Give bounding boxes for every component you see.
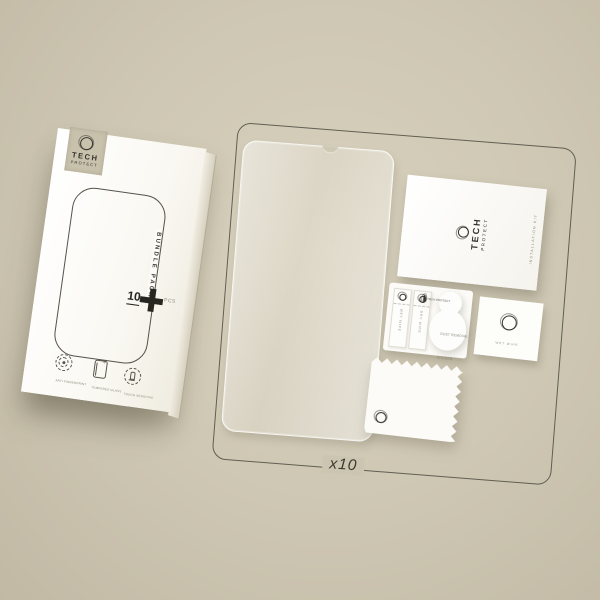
wet-wipe-label: WET WIPE xyxy=(474,330,540,355)
kit-contents-outline: TECH PROTECT INSTALLATION KIT WET WIPE D… xyxy=(211,122,576,486)
brand-logo: TECH PROTECT xyxy=(70,135,101,168)
quantity-unit: PCS xyxy=(164,297,177,305)
brand-logo: TECH PROTECT xyxy=(456,215,488,251)
sachet-label: DRY WIPE xyxy=(417,311,423,334)
retail-box: TECH PROTECT BUNDLE PACK 10 PCS ANTI FIN… xyxy=(21,128,207,412)
brand-ring-icon xyxy=(457,226,469,238)
brand-ring-icon xyxy=(80,136,95,151)
feature-touch-sensitive: TOUCH SENSITIVE xyxy=(108,364,155,405)
feature-label: TOUCH SENSITIVE xyxy=(123,393,153,400)
sticker-line1: DUST REMOVAL xyxy=(440,332,469,340)
box-side-edge xyxy=(168,152,217,419)
dust-removal-sticker: TECH PROTECT DUST REMOVAL STICKER xyxy=(427,290,470,353)
wet-wipe-packet: WET WIPE xyxy=(474,296,544,361)
brand-ring-icon xyxy=(399,293,407,301)
brand-ring-icon xyxy=(501,315,518,332)
wipes-backing-card: WET WIPE DRY WIPE TECH PROTECT DUST REMO… xyxy=(383,282,474,358)
pack-quantity-label: x10 xyxy=(322,455,365,476)
brand-badge: TECH PROTECT xyxy=(64,127,108,176)
brand-ring-icon xyxy=(375,411,387,423)
microfiber-cloth xyxy=(364,357,464,443)
touch-sensitive-icon xyxy=(123,366,142,385)
sachet-head xyxy=(394,289,411,306)
card-edge-text: INSTALLATION KIT xyxy=(529,214,538,265)
fingerprint-icon xyxy=(54,352,73,371)
tempered-glass-icon xyxy=(92,359,107,379)
product-photo-scene: TECH PROTECT BUNDLE PACK 10 PCS ANTI FIN… xyxy=(0,0,600,600)
instruction-card: TECH PROTECT INSTALLATION KIT xyxy=(397,175,547,291)
sticker-line2: STICKER xyxy=(436,356,452,363)
sachet-label: WET WIPE xyxy=(397,308,403,331)
cloth-fabric xyxy=(364,357,464,443)
plus-icon xyxy=(138,287,164,313)
camera-notch xyxy=(322,146,338,154)
